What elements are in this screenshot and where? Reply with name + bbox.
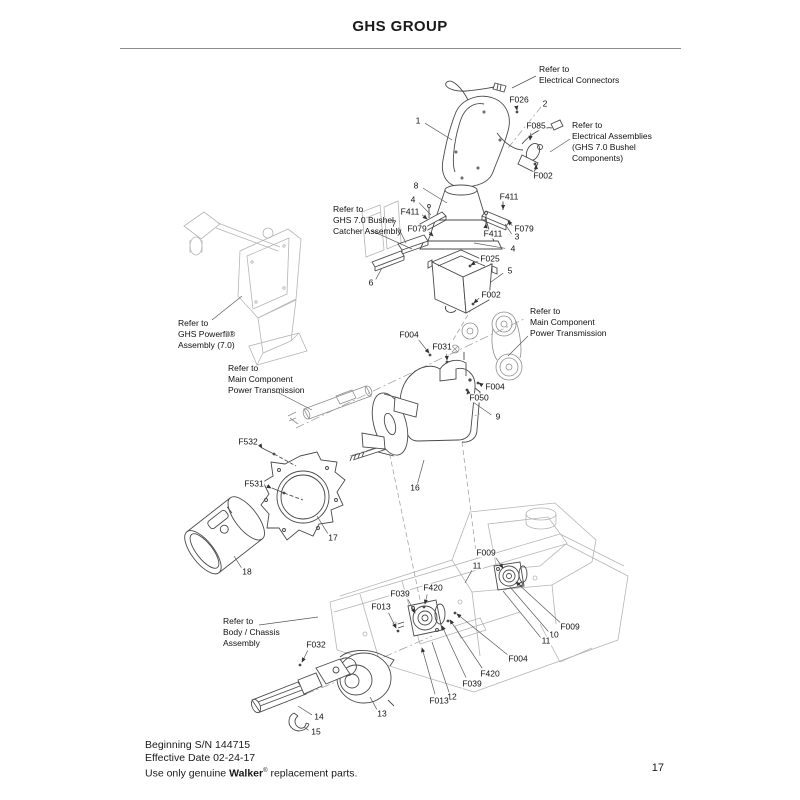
- leader-line: [473, 402, 491, 415]
- leader-line: [422, 648, 435, 694]
- container-box-5-drawing: [428, 250, 497, 313]
- footer-notice: Use only genuine Walker® replacement par…: [145, 765, 357, 780]
- leader-line: [417, 460, 424, 484]
- leader-line: [508, 221, 512, 226]
- catalog-page: GHS GROUP: [0, 0, 800, 800]
- leader-line: [260, 445, 262, 448]
- page-number: 17: [640, 762, 664, 774]
- leader-line: [422, 215, 427, 219]
- drum-18-drawing: [178, 491, 271, 579]
- leader-line: [432, 642, 449, 693]
- leader-line: [465, 570, 472, 583]
- catcher-panels-drawing: [362, 201, 401, 257]
- leader-line: [491, 273, 503, 282]
- backing-plate-17-drawing: [261, 452, 345, 540]
- leader-line: [550, 139, 570, 152]
- exploded-parts-diagram: [0, 0, 800, 800]
- leader-line: [372, 231, 412, 249]
- footer-block: Beginning S/N 144715 Effective Date 02-2…: [145, 739, 357, 780]
- leader-line: [450, 620, 482, 668]
- leader-line: [512, 76, 536, 88]
- bearing-upper-drawing: [494, 562, 527, 590]
- cover-drawing: [442, 81, 509, 187]
- leader-line: [298, 706, 312, 715]
- clutch-13-drawing: [337, 650, 394, 706]
- leader-line: [389, 613, 396, 628]
- footer-effective-date: Effective Date 02-24-17: [145, 752, 357, 765]
- leader-line: [419, 340, 429, 353]
- leader-line: [479, 383, 482, 385]
- leader-line: [530, 133, 531, 140]
- leader-line: [425, 123, 452, 140]
- blower-housing-drawing: [400, 352, 480, 442]
- footer-serial: Beginning S/N 144715: [145, 739, 357, 752]
- leader-line: [277, 392, 312, 410]
- support-bar-6-drawing: [372, 251, 404, 271]
- leader-line: [304, 727, 309, 730]
- leader-line: [302, 651, 308, 662]
- leader-line: [212, 296, 242, 320]
- leader-line: [508, 336, 528, 356]
- bearing-lower-drawing: [398, 600, 445, 636]
- leader-line: [398, 228, 406, 243]
- powerfil-assembly-drawing: [184, 212, 307, 365]
- brand-name: Walker: [229, 767, 263, 779]
- leader-line: [503, 591, 541, 638]
- leader-line: [442, 626, 466, 678]
- leader-line: [510, 587, 549, 632]
- leader-line: [259, 617, 318, 625]
- leader-line: [457, 614, 508, 655]
- leader-line: [516, 107, 517, 110]
